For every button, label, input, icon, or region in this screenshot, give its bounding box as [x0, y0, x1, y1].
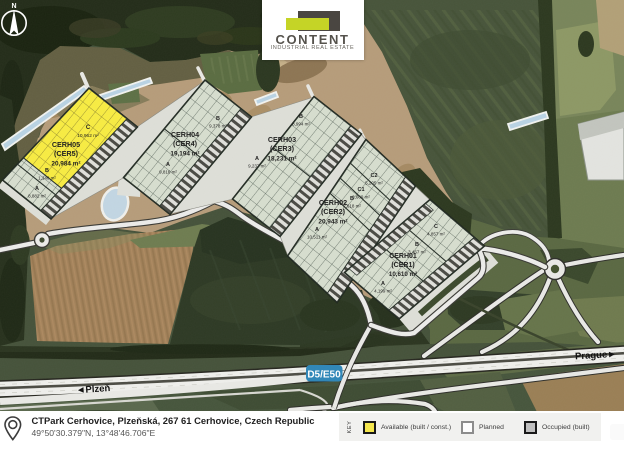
- svg-text:N: N: [11, 3, 16, 10]
